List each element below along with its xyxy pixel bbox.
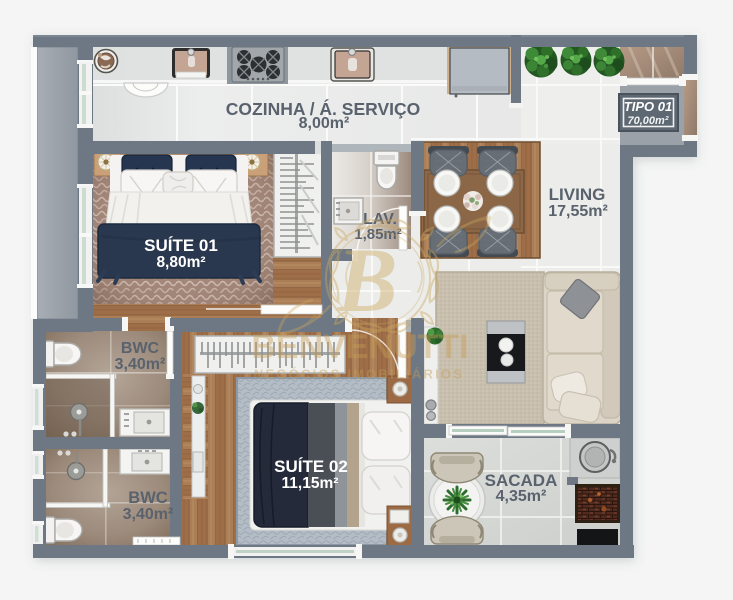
- svg-text:BENVENUTTI: BENVENUTTI: [251, 328, 468, 366]
- svg-text:8,00m²: 8,00m²: [299, 115, 350, 132]
- svg-text:3,40m²: 3,40m²: [123, 506, 174, 523]
- svg-text:70,00m²: 70,00m²: [628, 115, 669, 127]
- svg-text:LIVING: LIVING: [549, 185, 606, 204]
- svg-text:11,15m²: 11,15m²: [282, 475, 339, 492]
- svg-text:TIPO 01: TIPO 01: [624, 99, 672, 114]
- svg-text:B: B: [335, 229, 397, 331]
- svg-text:3,40m²: 3,40m²: [115, 356, 166, 373]
- svg-text:NEGÓCIOS IMOBILIÁRIOS: NEGÓCIOS IMOBILIÁRIOS: [254, 367, 464, 382]
- svg-text:BWC: BWC: [121, 340, 160, 357]
- svg-text:SUÍTE 02: SUÍTE 02: [274, 457, 348, 476]
- svg-text:SUÍTE 01: SUÍTE 01: [144, 236, 218, 255]
- svg-text:BWC: BWC: [128, 489, 167, 507]
- svg-text:17,55m²: 17,55m²: [548, 203, 608, 220]
- svg-text:4,35m²: 4,35m²: [496, 488, 547, 505]
- svg-text:8,80m²: 8,80m²: [156, 254, 205, 271]
